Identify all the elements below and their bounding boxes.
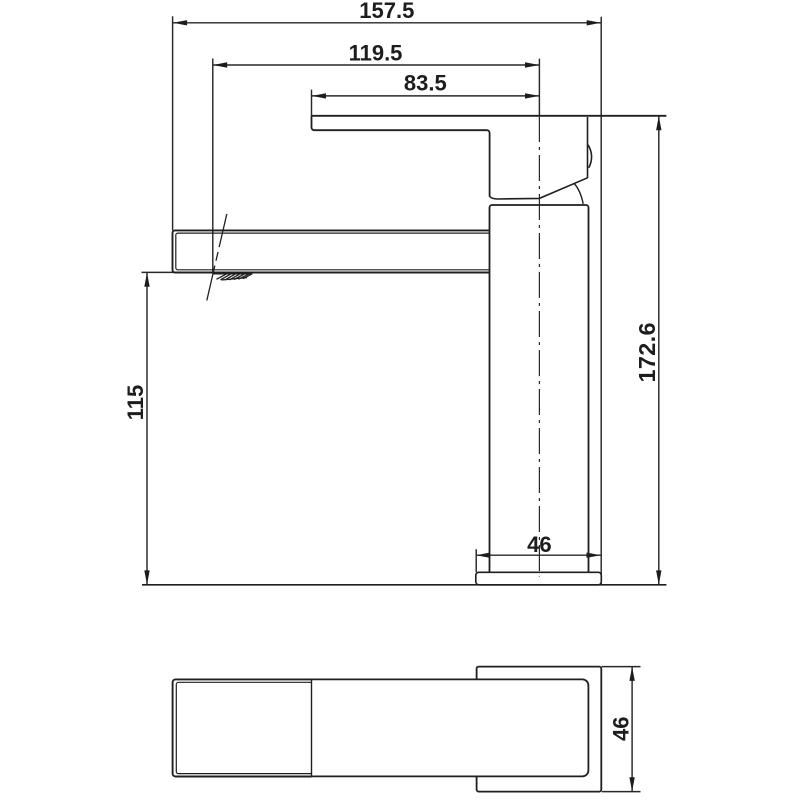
svg-text:46: 46	[608, 717, 633, 741]
svg-text:119.5: 119.5	[349, 41, 403, 66]
svg-text:157.5: 157.5	[359, 0, 414, 23]
svg-text:115: 115	[123, 385, 148, 421]
svg-text:83.5: 83.5	[404, 71, 447, 96]
svg-text:172.6: 172.6	[634, 322, 660, 382]
